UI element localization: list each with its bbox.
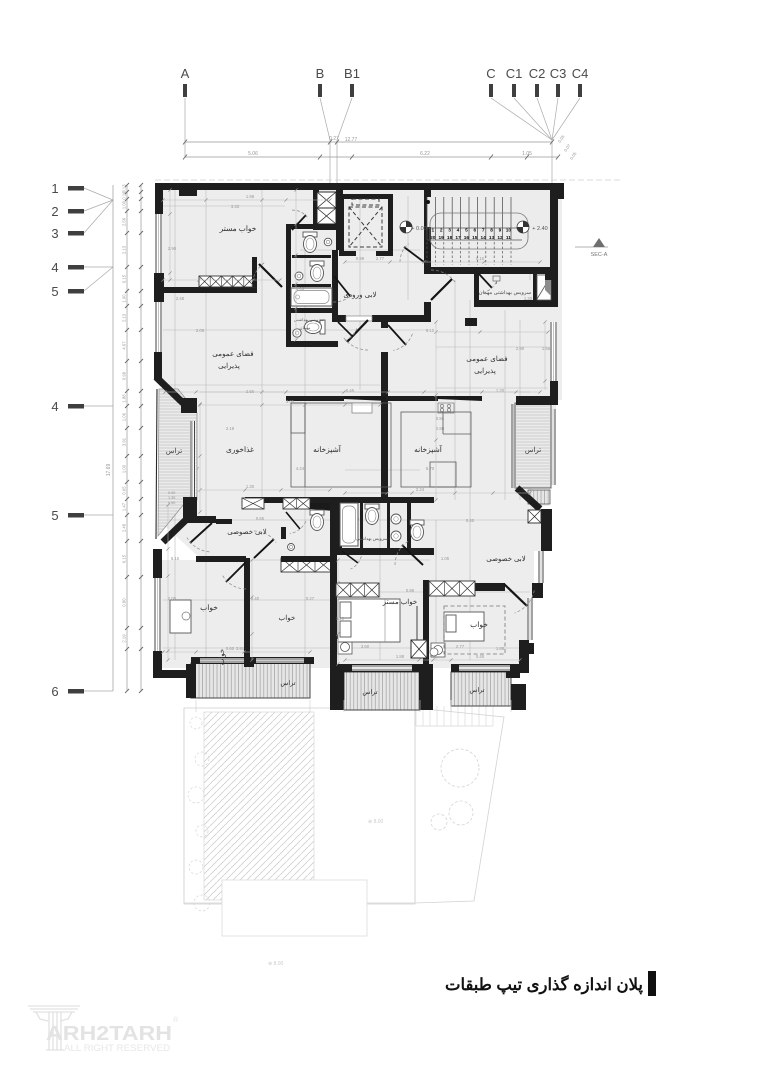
svg-text:مهمان: مهمان <box>300 325 311 330</box>
svg-text:خواب: خواب <box>470 620 488 629</box>
svg-text:1.88: 1.88 <box>496 646 505 651</box>
svg-text:0.99: 0.99 <box>356 256 365 261</box>
svg-text:2.24: 2.24 <box>416 487 425 492</box>
svg-text:8: 8 <box>490 228 493 234</box>
svg-text:+ 2.40: + 2.40 <box>532 226 547 232</box>
svg-text:2: 2 <box>440 228 443 234</box>
svg-text:5: 5 <box>51 284 58 299</box>
svg-text:B1: B1 <box>344 66 360 81</box>
svg-text:1.35: 1.35 <box>168 496 175 500</box>
svg-text:0.86: 0.86 <box>406 588 415 593</box>
svg-text:9: 9 <box>499 228 502 234</box>
svg-text:SEC-A: SEC-A <box>591 252 608 258</box>
svg-text:سرویس بهداشتی: سرویس بهداشتی <box>356 536 388 541</box>
svg-text:6.22: 6.22 <box>420 151 430 157</box>
svg-text:2.05: 2.05 <box>168 596 177 601</box>
svg-text:0.27: 0.27 <box>329 136 339 142</box>
svg-text:خواب: خواب <box>279 613 296 622</box>
svg-text:4: 4 <box>51 260 58 275</box>
svg-text:2.19: 2.19 <box>122 634 127 643</box>
svg-text:⊕ 8.00: ⊕ 8.00 <box>368 819 384 825</box>
svg-text:2.48: 2.48 <box>176 296 185 301</box>
svg-text:3.05: 3.05 <box>286 399 295 404</box>
svg-text:2.19: 2.19 <box>226 426 235 431</box>
svg-text:تراس: تراس <box>280 679 295 687</box>
svg-text:1.58: 1.58 <box>542 346 551 351</box>
svg-text:3.91: 3.91 <box>122 437 127 446</box>
svg-text:1.00: 1.00 <box>122 294 127 303</box>
svg-text:1.20: 1.20 <box>336 616 345 621</box>
svg-text:سرویس بهداشتی: سرویس بهداشتی <box>294 317 325 322</box>
svg-text:0.99: 0.99 <box>122 371 127 380</box>
svg-text:0.90: 0.90 <box>168 491 175 495</box>
svg-text:0.27: 0.27 <box>306 596 315 601</box>
svg-text:14: 14 <box>481 235 487 241</box>
svg-text:4: 4 <box>457 228 460 234</box>
svg-text:C3: C3 <box>550 66 567 81</box>
svg-text:لابی خصوصی: لابی خصوصی <box>227 528 267 536</box>
svg-text:0.80: 0.80 <box>122 598 127 607</box>
svg-text:C4: C4 <box>572 66 589 81</box>
svg-text:1: 1 <box>51 181 58 196</box>
svg-text:0.80: 0.80 <box>436 426 445 431</box>
svg-text:0.86: 0.86 <box>436 416 445 421</box>
svg-text:1: 1 <box>431 228 434 234</box>
svg-text:1.88: 1.88 <box>396 654 405 659</box>
svg-text:16: 16 <box>464 235 470 241</box>
svg-text:آشپزخانه: آشپزخانه <box>414 444 443 454</box>
svg-text:فضای عمومی: فضای عمومی <box>466 354 507 363</box>
svg-text:C: C <box>486 66 495 81</box>
svg-text:C2: C2 <box>529 66 546 81</box>
svg-text:غذاخوری: غذاخوری <box>226 445 254 454</box>
svg-text:4.67: 4.67 <box>122 341 127 350</box>
svg-text:C1: C1 <box>506 66 523 81</box>
svg-text:2.77: 2.77 <box>376 256 385 261</box>
svg-text:4: 4 <box>51 399 58 414</box>
svg-text:2.13: 2.13 <box>122 313 127 322</box>
svg-text:0.65: 0.65 <box>122 486 127 495</box>
svg-text:20: 20 <box>430 235 436 241</box>
svg-text:پذیرایی: پذیرایی <box>474 366 496 375</box>
svg-text:0.45: 0.45 <box>476 654 485 659</box>
svg-text:0.90: 0.90 <box>168 501 175 505</box>
svg-text:تراس: تراس <box>362 688 377 696</box>
svg-text:0.13: 0.13 <box>122 184 127 193</box>
svg-text:A: A <box>181 66 190 81</box>
svg-text:تراس: تراس <box>166 447 182 455</box>
svg-text:سرویس بهداشتی مهمان: سرویس بهداشتی مهمان <box>479 290 531 296</box>
svg-text:2.77: 2.77 <box>456 644 465 649</box>
svg-text:1.47: 1.47 <box>122 502 127 511</box>
svg-text:1.06: 1.06 <box>296 286 305 291</box>
svg-text:+ 0.00: + 0.00 <box>411 226 426 232</box>
svg-text:2.13: 2.13 <box>122 245 127 254</box>
svg-text:لابی ورودی: لابی ورودی <box>343 290 376 299</box>
svg-text:0.10: 0.10 <box>476 256 485 261</box>
svg-text:13: 13 <box>489 235 495 241</box>
svg-text:0.10: 0.10 <box>122 191 127 200</box>
svg-text:0.10: 0.10 <box>426 328 435 333</box>
svg-text:0.40: 0.40 <box>251 596 260 601</box>
svg-text:پذیرایی: پذیرایی <box>218 361 240 370</box>
svg-text:6.15: 6.15 <box>171 556 180 561</box>
svg-text:پلان اندازه گذاری تیپ طبقات: پلان اندازه گذاری تیپ طبقات <box>445 974 643 995</box>
svg-text:1.05: 1.05 <box>441 556 450 561</box>
svg-text:3.91: 3.91 <box>236 646 245 651</box>
svg-text:3: 3 <box>51 226 58 241</box>
svg-text:3: 3 <box>448 228 451 234</box>
svg-text:1.30: 1.30 <box>246 484 255 489</box>
svg-text:5: 5 <box>465 228 468 234</box>
svg-text:19: 19 <box>439 235 445 241</box>
svg-text:6: 6 <box>51 684 58 699</box>
svg-text:5: 5 <box>51 508 58 523</box>
svg-text:10: 10 <box>506 228 512 234</box>
svg-text:آشپزخانه: آشپزخانه <box>313 444 342 454</box>
svg-text:17: 17 <box>455 235 461 241</box>
svg-text:خواب مستر: خواب مستر <box>219 224 257 233</box>
svg-text:خواب: خواب <box>200 603 218 612</box>
svg-text:3.60: 3.60 <box>361 644 370 649</box>
svg-text:تراس: تراس <box>469 686 484 694</box>
svg-text:7: 7 <box>482 228 485 234</box>
svg-text:2.48: 2.48 <box>122 523 127 532</box>
svg-text:0.60: 0.60 <box>226 646 235 651</box>
svg-text:18: 18 <box>447 235 453 241</box>
svg-text:®: ® <box>173 1016 179 1024</box>
svg-text:1.06: 1.06 <box>122 412 127 421</box>
svg-text:15: 15 <box>472 235 478 241</box>
svg-text:1.88: 1.88 <box>122 394 127 403</box>
svg-text:2: 2 <box>51 204 58 219</box>
svg-text:2.56: 2.56 <box>122 217 127 226</box>
svg-text:0.40: 0.40 <box>466 518 475 523</box>
svg-text:11: 11 <box>506 235 511 241</box>
svg-text:3.33: 3.33 <box>231 204 240 209</box>
svg-text:0.65: 0.65 <box>256 516 265 521</box>
svg-text:فضای عمومی: فضای عمومی <box>212 349 253 358</box>
svg-text:4.24: 4.24 <box>296 466 305 471</box>
svg-text:ARH2TARH: ARH2TARH <box>46 1023 172 1045</box>
svg-text:5.06: 5.06 <box>248 151 258 157</box>
svg-text:12: 12 <box>497 235 503 241</box>
svg-text:لابی خصوصی: لابی خصوصی <box>486 555 526 563</box>
svg-text:1.00: 1.00 <box>122 200 127 209</box>
svg-text:0.15: 0.15 <box>122 274 127 283</box>
svg-text:⊕ 8.00: ⊕ 8.00 <box>268 961 284 967</box>
svg-text:خواب: خواب <box>218 649 226 665</box>
svg-text:2.90: 2.90 <box>516 346 525 351</box>
svg-text:2.56: 2.56 <box>246 389 255 394</box>
svg-text:6: 6 <box>473 228 476 234</box>
svg-text:17.69: 17.69 <box>106 464 112 477</box>
svg-text:ALL RIGHT RESERVED: ALL RIGHT RESERVED <box>64 1043 171 1053</box>
svg-text:B: B <box>316 66 325 81</box>
svg-text:2.05: 2.05 <box>196 328 205 333</box>
svg-text:1.98: 1.98 <box>246 194 255 199</box>
svg-text:1.00: 1.00 <box>122 464 127 473</box>
svg-text:2.90: 2.90 <box>168 246 177 251</box>
svg-text:6.15: 6.15 <box>122 554 127 563</box>
svg-text:خواب مستر: خواب مستر <box>382 598 417 606</box>
svg-text:12.77: 12.77 <box>345 137 358 143</box>
svg-text:1.05: 1.05 <box>522 151 532 157</box>
svg-text:تراس: تراس <box>525 446 541 454</box>
